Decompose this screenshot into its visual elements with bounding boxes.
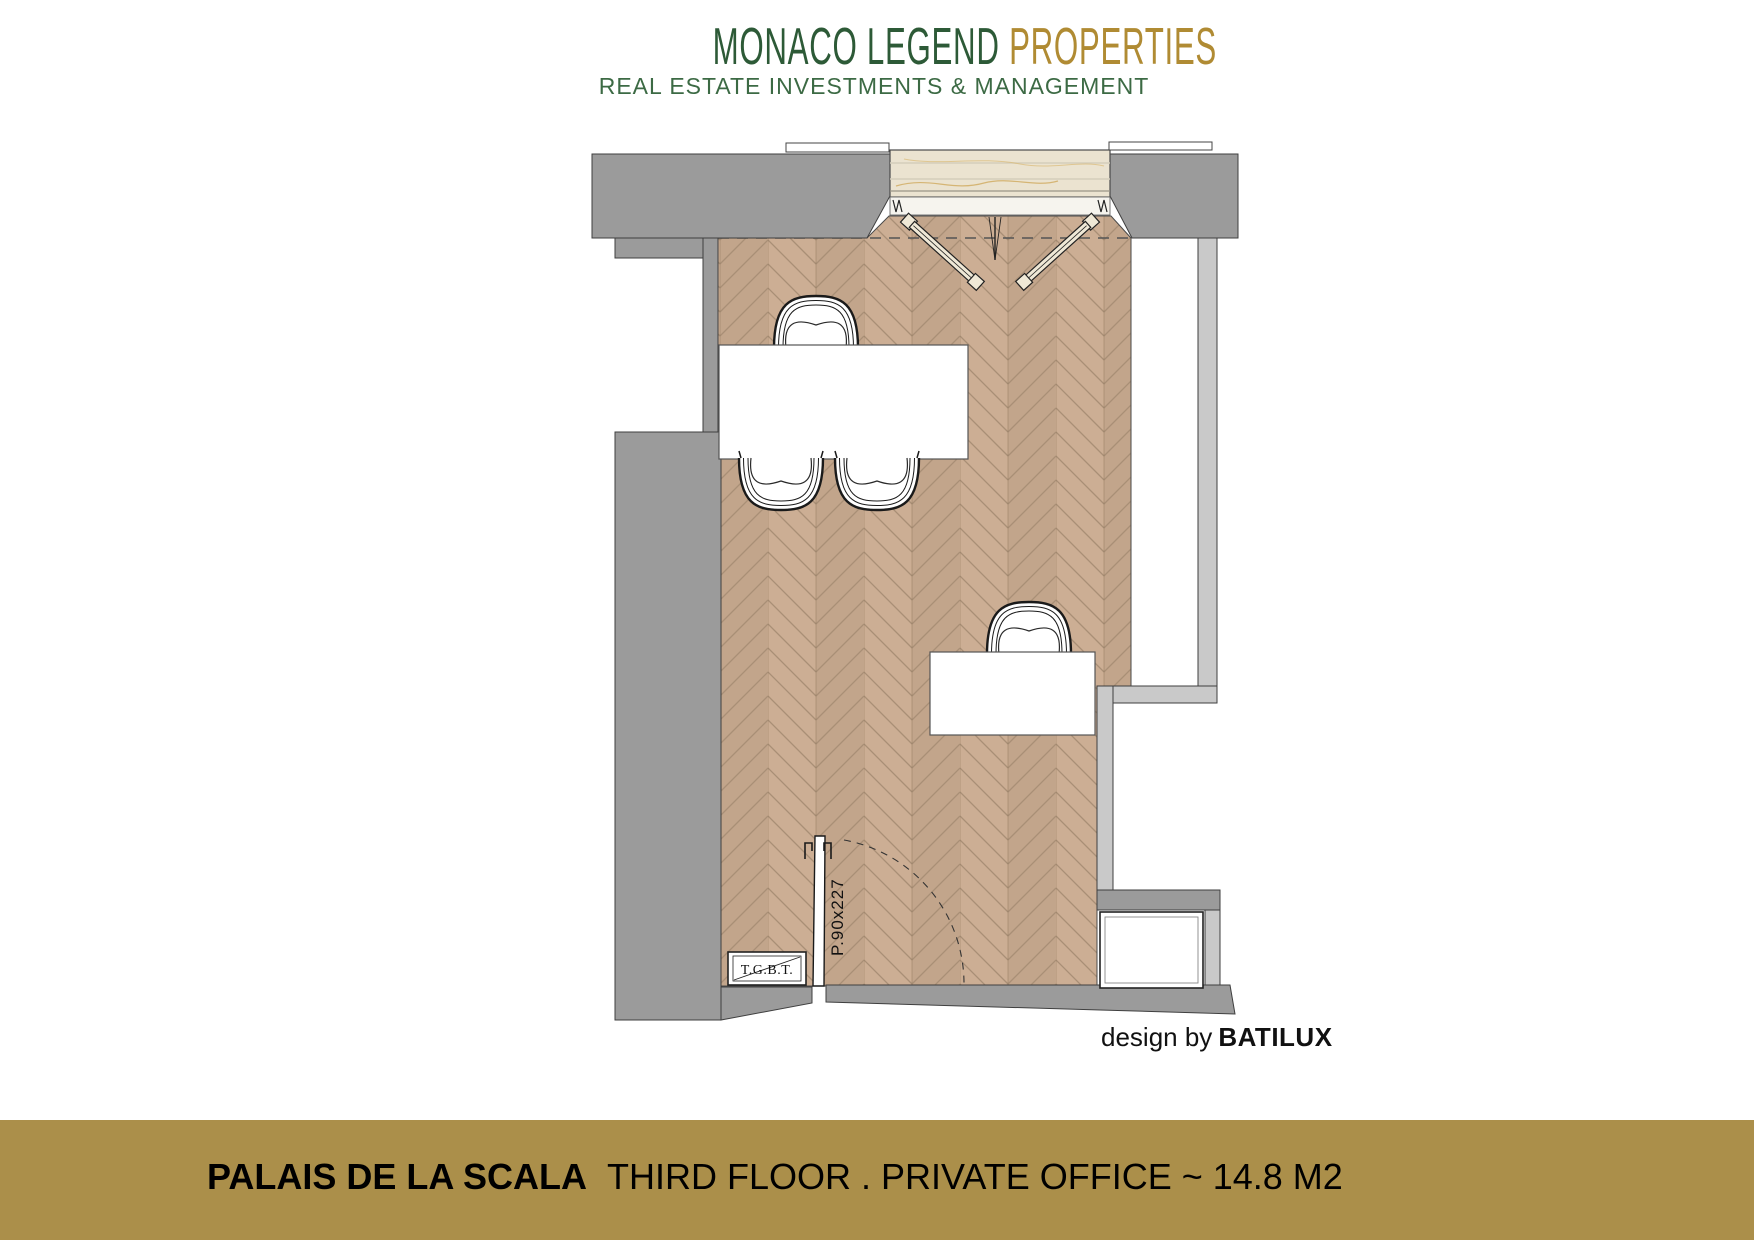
meeting-chair-bottom-left (739, 451, 823, 510)
design-credit-brand: BATILUX (1218, 1022, 1332, 1052)
wall-left-thin (703, 238, 718, 432)
meeting-chair-bottom-right (835, 451, 919, 510)
wall-bottom-right (826, 985, 1235, 1014)
wall-right-lower (1097, 686, 1113, 890)
electrical-panel-label: T.G.B.T. (741, 963, 793, 978)
design-credit: design byBATILUX (1101, 1022, 1333, 1053)
service-box (1100, 912, 1203, 988)
design-credit-prefix: design by (1101, 1022, 1212, 1052)
floor-plan: P.90x227 T.G.B.T. (0, 0, 1754, 1240)
wall-bottom-left (721, 987, 812, 1020)
footer-title: PALAIS DE LA SCALATHIRD FLOOR . PRIVATE … (207, 1156, 1343, 1198)
window-marble-sill (890, 150, 1110, 197)
wall-left-block (615, 432, 721, 1020)
window-ledge-right (1109, 142, 1212, 150)
wall-box-top (1097, 890, 1220, 910)
footer-unit-details: THIRD FLOOR . PRIVATE OFFICE ~ 14.8 M2 (607, 1156, 1343, 1197)
desk (930, 652, 1095, 735)
window-ledge-left (786, 143, 889, 152)
footer-building-name: PALAIS DE LA SCALA (207, 1156, 587, 1197)
door-dimension-label: P.90x227 (828, 878, 847, 956)
wall-top-right (1110, 154, 1238, 238)
wall-top-left (592, 154, 890, 238)
door-leaf (813, 836, 825, 986)
wall-right-upper (1198, 238, 1217, 690)
electrical-panel: T.G.B.T. (728, 952, 806, 985)
meeting-table (719, 345, 968, 459)
wall-top-left-step (615, 238, 703, 258)
wall-right-step (1113, 686, 1217, 703)
window-inner-sill (890, 197, 1110, 215)
footer-band: PALAIS DE LA SCALATHIRD FLOOR . PRIVATE … (0, 1120, 1754, 1240)
